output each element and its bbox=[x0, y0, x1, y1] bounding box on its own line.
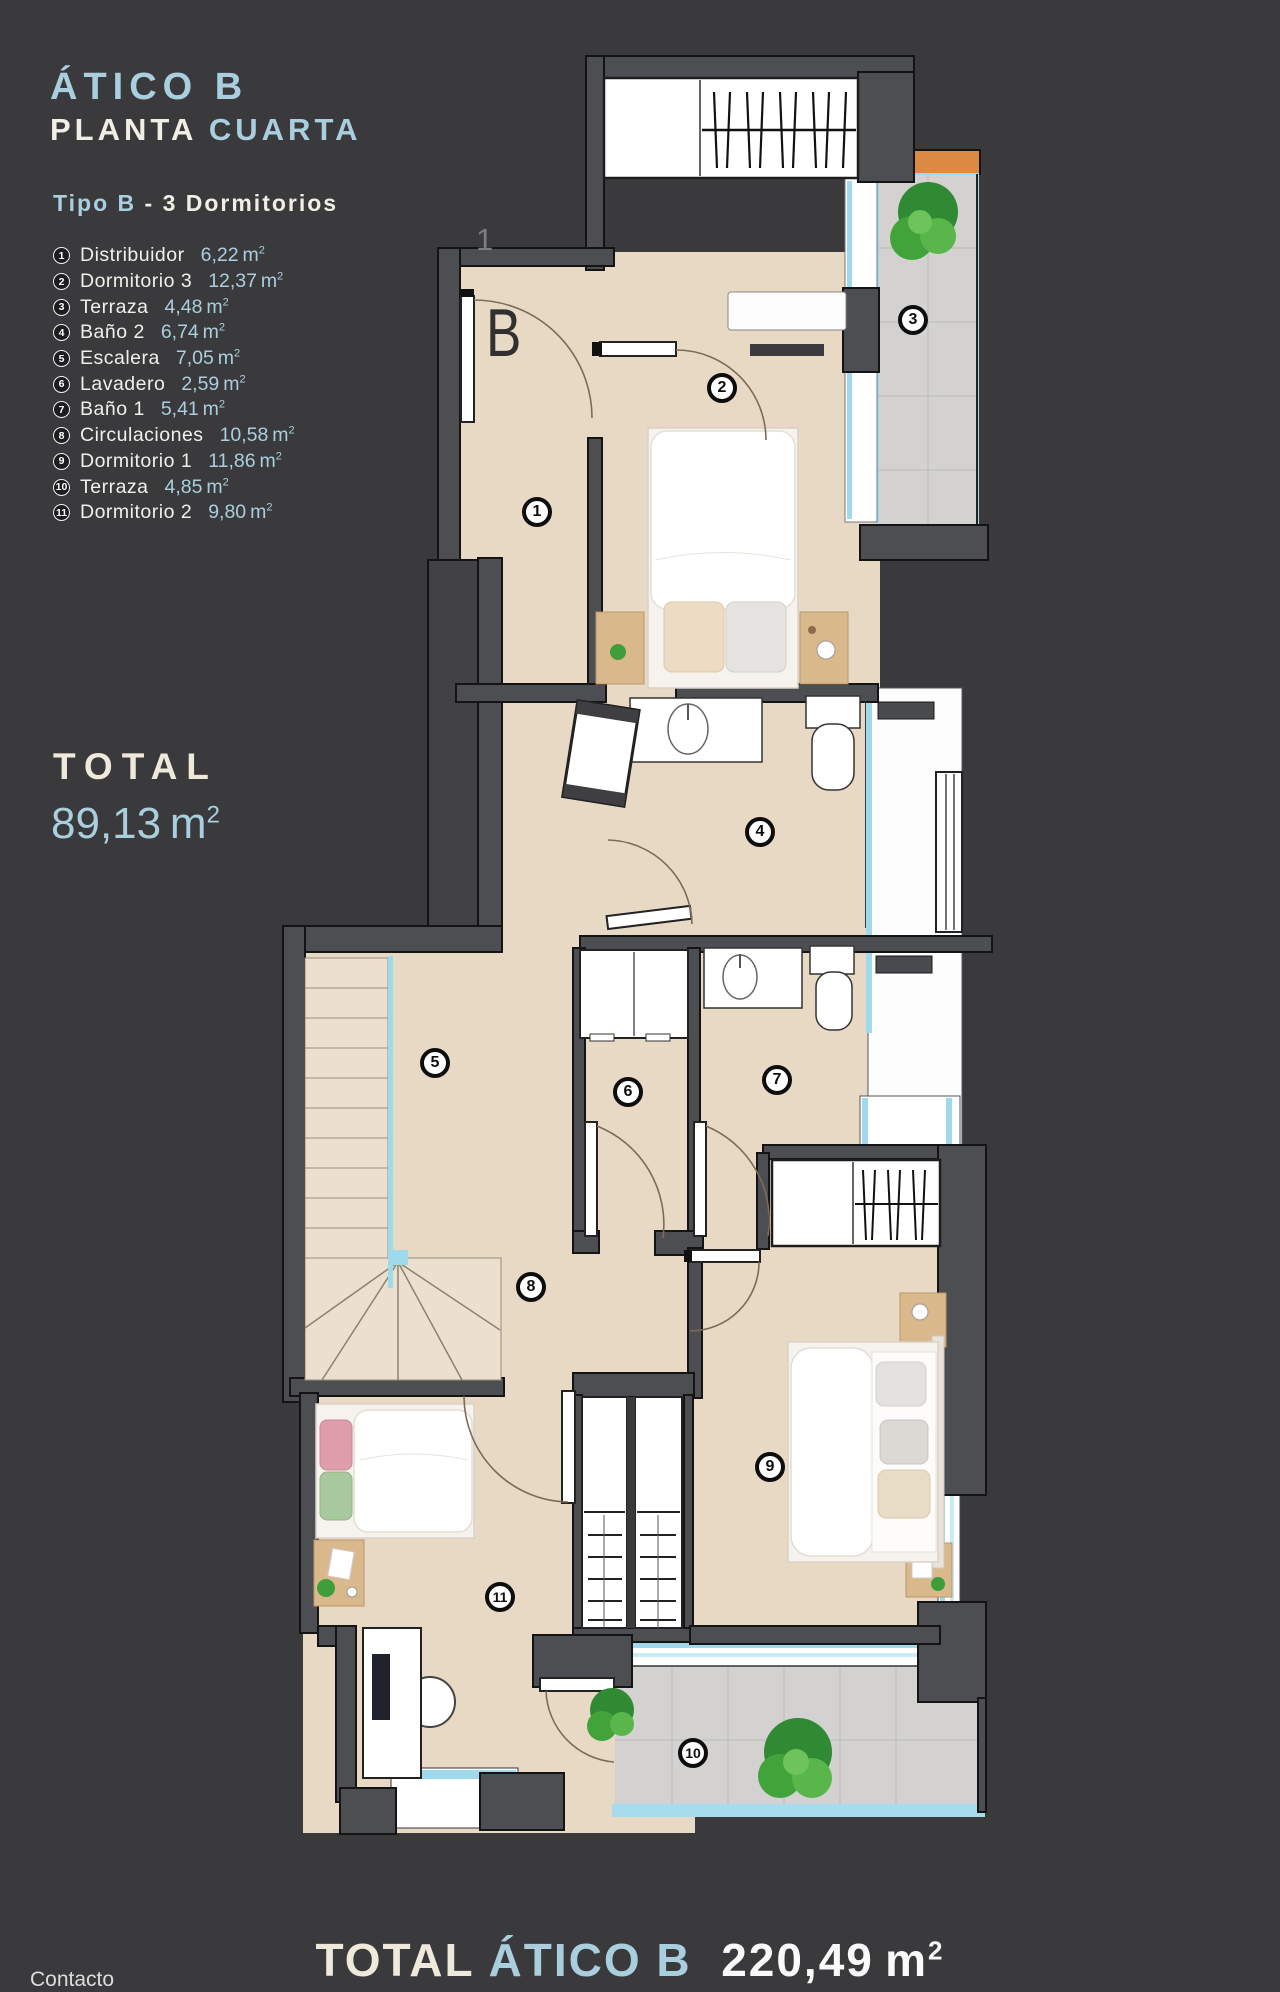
legend-item-9: 9Dormitorio 111,86 m2 bbox=[53, 449, 295, 475]
total-value: 89,13 m2 bbox=[51, 799, 220, 849]
room-badge-6: 6 bbox=[613, 1077, 643, 1107]
legend-label: Dormitorio 2 bbox=[80, 501, 192, 524]
room-badge-1: 1 bbox=[522, 497, 552, 527]
laundry-cabinet bbox=[580, 950, 688, 1041]
legend-value: 5,41 m2 bbox=[161, 398, 225, 421]
room-badge-11: 11 bbox=[485, 1582, 515, 1612]
footer-total: TOTAL ÁTICO B 220,49 m2 bbox=[240, 1933, 1020, 1987]
wardrobe-dorm1 bbox=[772, 1160, 940, 1246]
legend-num: 1 bbox=[53, 247, 70, 264]
legend-num: 7 bbox=[53, 401, 70, 418]
legend-value: 4,48 m2 bbox=[165, 296, 229, 319]
legend-label: Circulaciones bbox=[80, 424, 204, 447]
room-legend: 1Distribuidor6,22 m2 2Dormitorio 312,37 … bbox=[53, 243, 295, 526]
legend-label: Distribuidor bbox=[80, 244, 185, 267]
bench-dorm3 bbox=[728, 292, 846, 330]
type-heading: Tipo B - 3 Dormitorios bbox=[53, 190, 338, 217]
legend-item-6: 6Lavadero2,59 m2 bbox=[53, 371, 295, 397]
footer-total-accent: ÁTICO B bbox=[489, 1934, 692, 1986]
legend-value: 4,85 m2 bbox=[165, 476, 229, 499]
closet-dorm3 bbox=[604, 78, 858, 178]
legend-num: 11 bbox=[53, 504, 70, 521]
legend-num: 8 bbox=[53, 427, 70, 444]
legend-item-4: 4Baño 26,74 m2 bbox=[53, 320, 295, 346]
room-badge-9: 9 bbox=[755, 1452, 785, 1482]
legend-num: 4 bbox=[53, 324, 70, 341]
legend-label: Baño 2 bbox=[80, 321, 145, 344]
legend-value: 12,37 m2 bbox=[208, 270, 283, 293]
stray-mark: 1 bbox=[476, 222, 493, 258]
legend-item-1: 1Distribuidor6,22 m2 bbox=[53, 243, 295, 269]
type-accent: Tipo B bbox=[53, 190, 136, 216]
room-badge-5: 5 bbox=[420, 1048, 450, 1078]
legend-label: Lavadero bbox=[80, 373, 165, 396]
subtitle-white: PLANTA bbox=[50, 112, 196, 147]
legend-label: Baño 1 bbox=[80, 398, 145, 421]
room-badge-7: 7 bbox=[762, 1065, 792, 1095]
room-badge-10: 10 bbox=[678, 1738, 708, 1768]
legend-label: Dormitorio 3 bbox=[80, 270, 192, 293]
legend-label: Dormitorio 1 bbox=[80, 450, 192, 473]
room-badge-4: 4 bbox=[745, 817, 775, 847]
legend-num: 10 bbox=[53, 479, 70, 496]
legend-value: 10,58 m2 bbox=[220, 424, 295, 447]
type-rest: - 3 Dormitorios bbox=[145, 190, 339, 216]
footer-total-label: TOTAL bbox=[316, 1934, 474, 1986]
room-badge-3: 3 bbox=[898, 305, 928, 335]
room-badge-8: 8 bbox=[516, 1272, 546, 1302]
page-subtitle: PLANTA CUARTA bbox=[50, 112, 361, 148]
bench-shadow bbox=[750, 344, 824, 356]
block-letter: B bbox=[486, 294, 521, 372]
footer-total-value: 220,49 m2 bbox=[721, 1934, 944, 1986]
legend-value: 2,59 m2 bbox=[181, 373, 245, 396]
room-badge-2: 2 bbox=[707, 373, 737, 403]
legend-item-5: 5Escalera7,05 m2 bbox=[53, 346, 295, 372]
legend-item-10: 10Terraza4,85 m2 bbox=[53, 474, 295, 500]
legend-num: 6 bbox=[53, 376, 70, 393]
legend-value: 11,86 m2 bbox=[208, 450, 282, 473]
legend-label: Terraza bbox=[80, 296, 149, 319]
page-title: ÁTICO B bbox=[50, 66, 248, 109]
legend-value: 6,22 m2 bbox=[201, 244, 265, 267]
legend-num: 9 bbox=[53, 453, 70, 470]
legend-label: Escalera bbox=[80, 347, 160, 370]
total-label: TOTAL bbox=[53, 746, 218, 788]
wardrobe-central bbox=[582, 1397, 682, 1628]
contact-link[interactable]: Contacto bbox=[30, 1968, 114, 1992]
legend-num: 5 bbox=[53, 350, 70, 367]
legend-item-2: 2Dormitorio 312,37 m2 bbox=[53, 269, 295, 295]
legend-item-8: 8Circulaciones10,58 m2 bbox=[53, 423, 295, 449]
legend-num: 2 bbox=[53, 273, 70, 290]
subtitle-accent: CUARTA bbox=[209, 112, 362, 147]
legend-value: 6,74 m2 bbox=[161, 321, 225, 344]
legend-item-3: 3Terraza4,48 m2 bbox=[53, 294, 295, 320]
legend-value: 7,05 m2 bbox=[176, 347, 240, 370]
legend-item-11: 11Dormitorio 29,80 m2 bbox=[53, 500, 295, 526]
legend-item-7: 7Baño 15,41 m2 bbox=[53, 397, 295, 423]
legend-value: 9,80 m2 bbox=[208, 501, 272, 524]
legend-num: 3 bbox=[53, 299, 70, 316]
legend-label: Terraza bbox=[80, 476, 149, 499]
